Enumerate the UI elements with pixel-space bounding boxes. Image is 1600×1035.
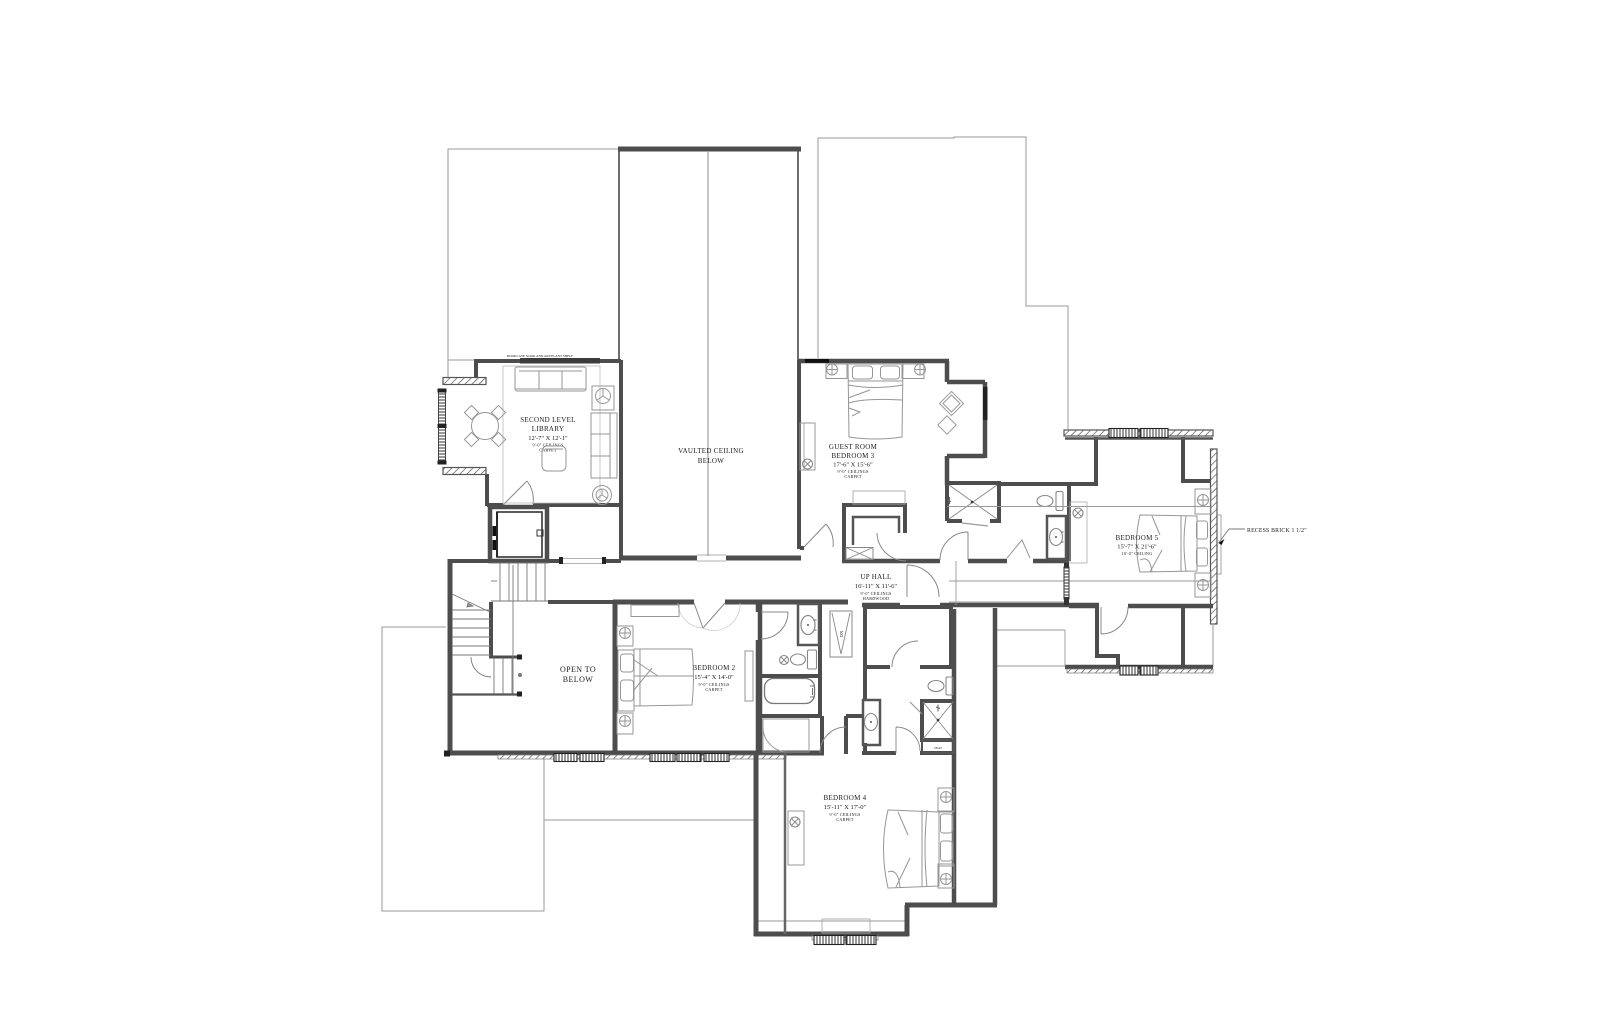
svg-text:15'-7" X 21'-6": 15'-7" X 21'-6"	[1117, 544, 1157, 551]
svg-text:16'-11" X 11'-6": 16'-11" X 11'-6"	[855, 583, 898, 590]
svg-text:BEDROOM 4: BEDROOM 4	[824, 794, 867, 802]
svg-text:RECESS BRICK 1 1/2": RECESS BRICK 1 1/2"	[1247, 528, 1307, 534]
svg-text:BEDROOM 5: BEDROOM 5	[1116, 534, 1159, 542]
svg-text:HARDWOOD: HARDWOOD	[863, 596, 890, 601]
svg-text:BELOW: BELOW	[563, 675, 593, 684]
svg-text:15'-4" X 14'-0": 15'-4" X 14'-0"	[694, 674, 734, 681]
svg-text:SEAT: SEAT	[934, 746, 943, 750]
svg-text:BELOW: BELOW	[698, 457, 724, 465]
svg-text:15'-11" X 17'-0": 15'-11" X 17'-0"	[824, 804, 867, 811]
svg-text:BEDROOM 2: BEDROOM 2	[693, 664, 736, 672]
svg-text:CARPET: CARPET	[705, 687, 722, 692]
svg-text:LIBRARY: LIBRARY	[532, 425, 564, 433]
svg-text:17'-6" X 15'-6": 17'-6" X 15'-6"	[833, 462, 873, 469]
svg-text:CARPET: CARPET	[844, 474, 861, 479]
svg-text:VAULTED CEILING: VAULTED CEILING	[678, 447, 744, 455]
svg-text:BEDROOM 3: BEDROOM 3	[832, 452, 875, 460]
svg-text:GUEST ROOM: GUEST ROOM	[829, 443, 878, 451]
svg-text:UP HALL: UP HALL	[860, 573, 891, 581]
svg-text:10'-0" CEILING: 10'-0" CEILING	[1122, 551, 1153, 556]
svg-text:12'-7" X 12'-1": 12'-7" X 12'-1"	[528, 435, 568, 442]
svg-text:DN: DN	[839, 631, 844, 637]
svg-text:OPEN TO: OPEN TO	[560, 665, 596, 674]
svg-text:BOOKCASE NOOK AND ART/PLANT SH: BOOKCASE NOOK AND ART/PLANT SHELF	[507, 354, 573, 358]
svg-text:SECOND LEVEL: SECOND LEVEL	[520, 416, 576, 424]
svg-text:CARPET: CARPET	[836, 817, 853, 822]
